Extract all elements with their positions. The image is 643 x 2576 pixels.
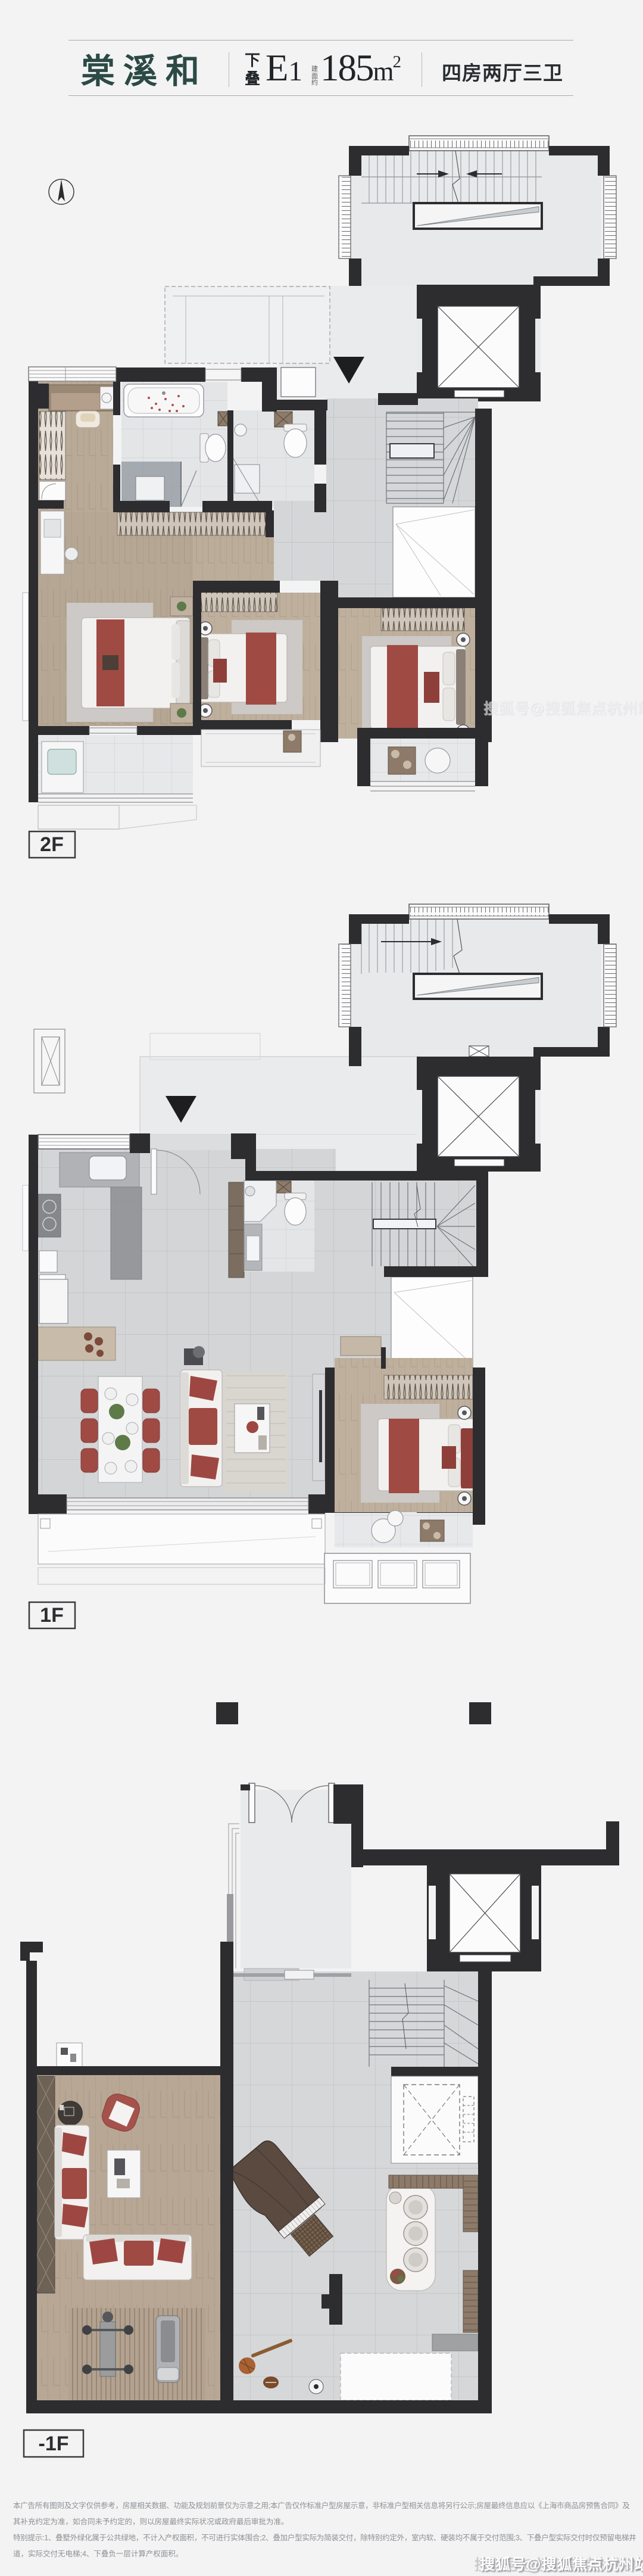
svg-text:1F: 1F [40,1604,64,1627]
svg-text:2F: 2F [40,833,64,856]
svg-text:-1F: -1F [39,2432,69,2455]
